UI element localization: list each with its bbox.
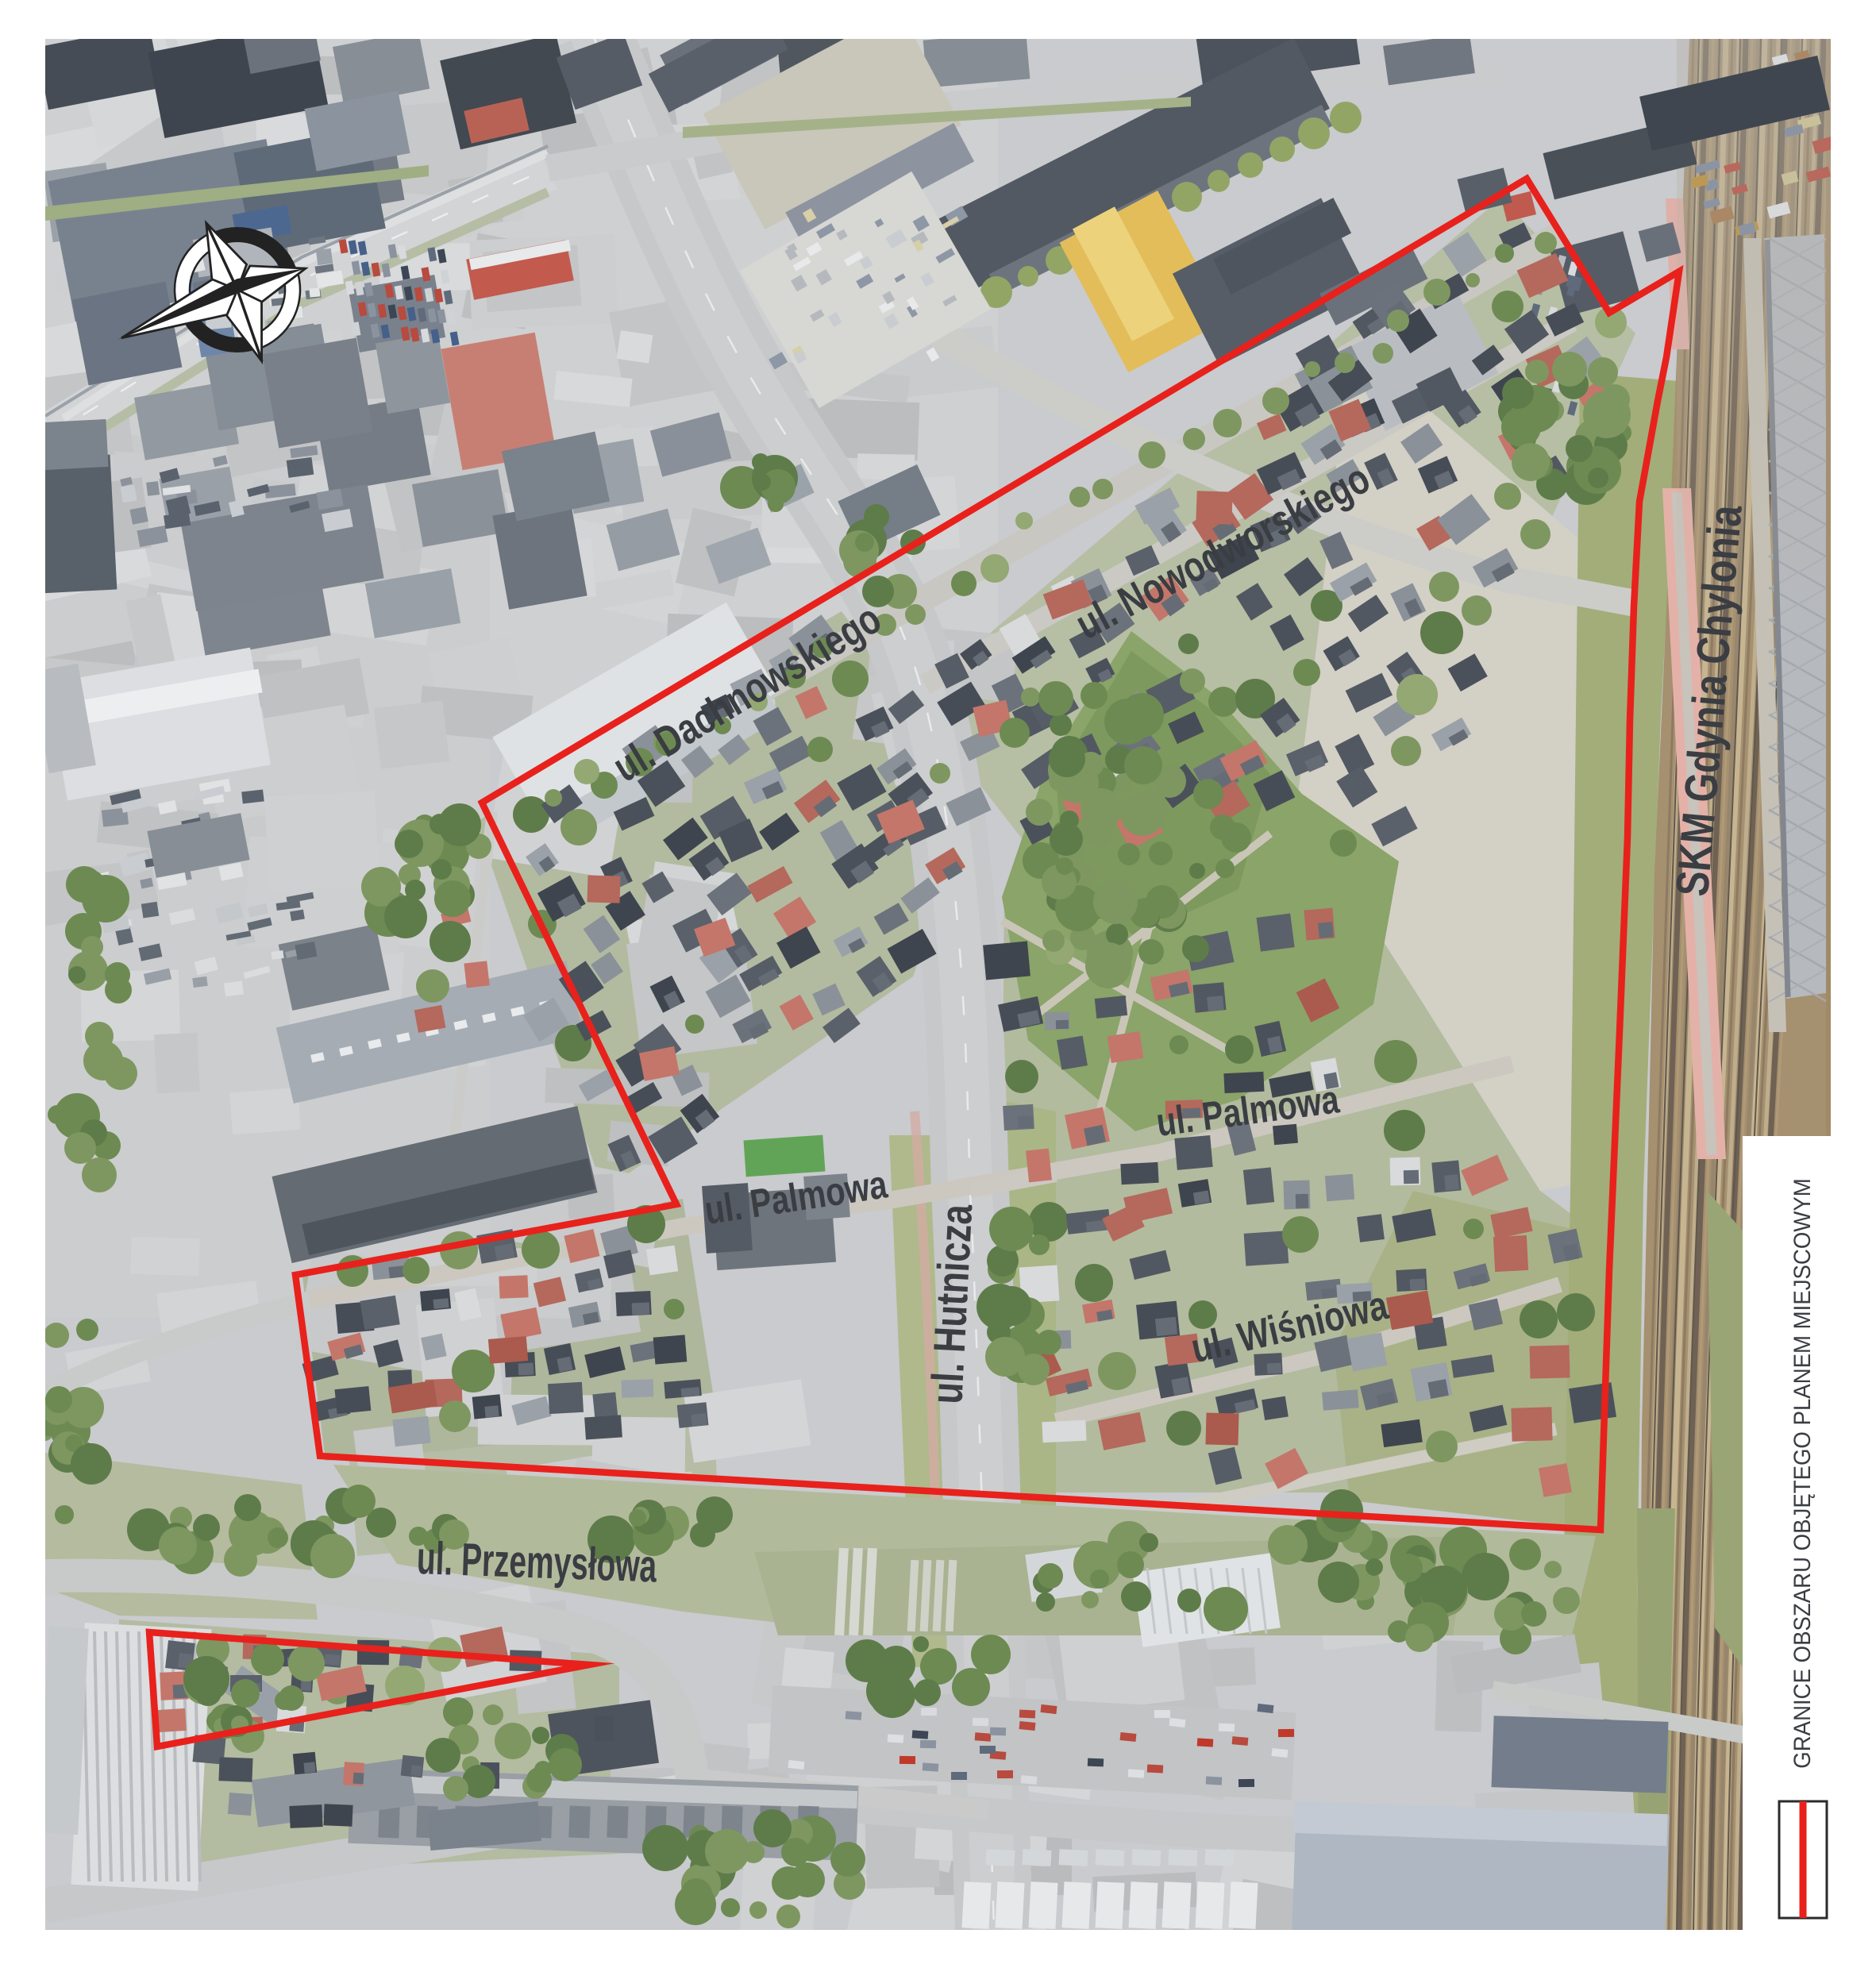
- svg-text:ul. Hutnicza: ul. Hutnicza: [921, 1203, 981, 1405]
- svg-text:GRANICE OBSZARU OBJĘTEGO PLANE: GRANICE OBSZARU OBJĘTEGO PLANEM MIEJSCOW…: [1789, 1178, 1816, 1768]
- svg-text:ul. Przemysłowa: ul. Przemysłowa: [416, 1532, 658, 1592]
